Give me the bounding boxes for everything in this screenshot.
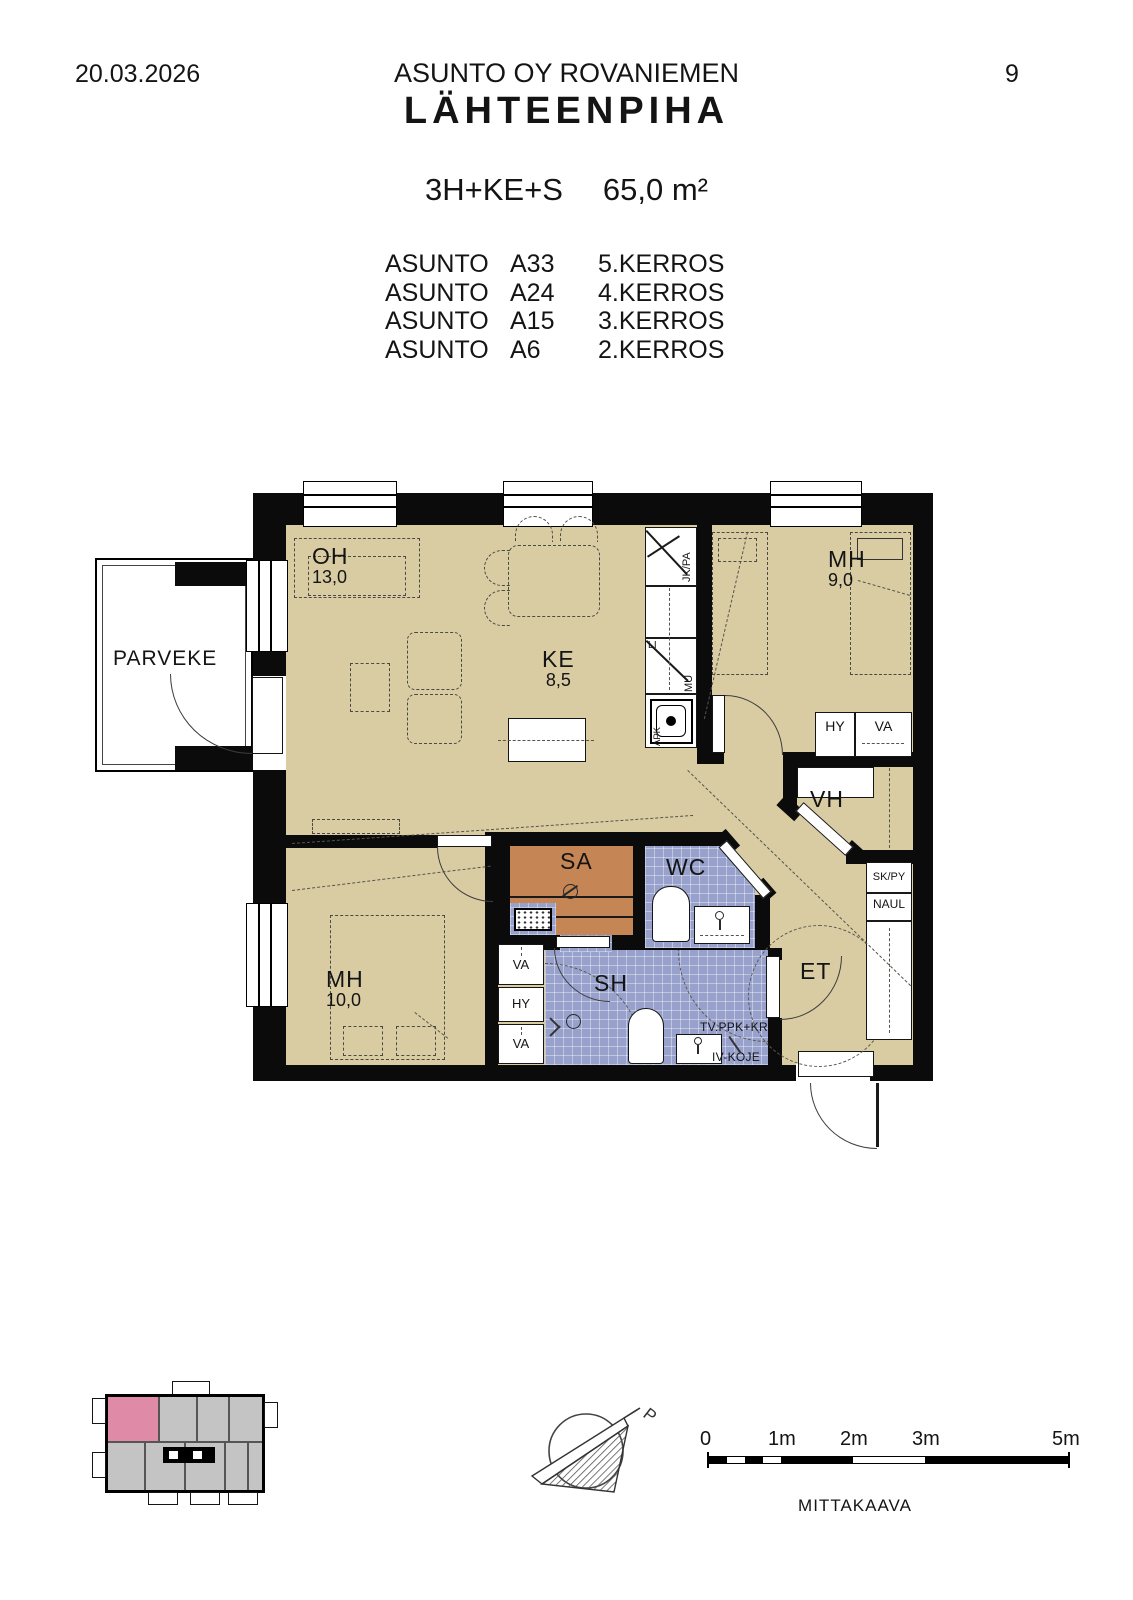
- room-area: 10,0: [326, 991, 364, 1009]
- toilet: [652, 886, 690, 942]
- keyplan-highlighted-unit: [108, 1397, 158, 1441]
- centerline: [889, 928, 890, 1033]
- door-leaf: [712, 695, 725, 753]
- unit-id: A15: [510, 307, 598, 336]
- unit-floor: 3.KERROS: [598, 307, 724, 335]
- keyplan-tab: [92, 1398, 106, 1424]
- armchair-outline: [407, 694, 462, 744]
- sauna-heater: [514, 908, 552, 931]
- room-area: 9,0: [828, 571, 866, 589]
- closet-label: HY: [816, 718, 854, 734]
- window: [303, 481, 397, 527]
- window-frame-line: [258, 904, 260, 1006]
- centerline: [700, 935, 744, 936]
- floorplan-page: 20.03.2026 ASUNTO OY ROVANIEMEN LÄHTEENP…: [0, 0, 1133, 1600]
- wall-segment: [498, 832, 510, 950]
- unit-floor: 4.KERROS: [598, 279, 724, 307]
- room-label-et: ET: [800, 960, 831, 983]
- floor-drain-icon: [563, 884, 578, 899]
- fixture-label-vent: IV-KOJE: [712, 1050, 760, 1064]
- wc-vanity: [694, 906, 750, 944]
- faucet-icon: [715, 911, 724, 920]
- centerline: [521, 1027, 522, 1035]
- keyplan-divider: [224, 1443, 226, 1490]
- window: [770, 481, 862, 527]
- floor-drain-icon: [566, 1014, 581, 1029]
- balcony-door-leaf: [252, 677, 283, 754]
- room-area: 13,0: [312, 568, 349, 586]
- wall-segment: [495, 832, 725, 846]
- unit-label: ASUNTO: [385, 336, 510, 365]
- scale-tick-3m: 3m: [912, 1428, 940, 1451]
- unit-list: ASUNTOA335.KERROS ASUNTOA244.KERROS ASUN…: [385, 250, 724, 364]
- keyplan-tab: [148, 1492, 178, 1505]
- wall-segment: [633, 846, 645, 950]
- unit-row: ASUNTOA153.KERROS: [385, 307, 724, 336]
- scale-bar-segment: [745, 1457, 763, 1463]
- window-frame-line: [504, 506, 592, 508]
- scale-bar-segment: [925, 1457, 1069, 1463]
- centerline: [498, 740, 594, 741]
- centerline: [862, 743, 904, 744]
- closet-label: HY: [499, 996, 543, 1011]
- door-leaf: [437, 835, 492, 847]
- et-cabinet: SK/PY NAUL: [866, 862, 912, 1040]
- scale-tick-0: 0: [700, 1428, 711, 1451]
- keyplan-building: [105, 1394, 265, 1493]
- drain-line: [562, 885, 578, 897]
- cabinet-divider: [645, 693, 697, 695]
- room-label-parveke: PARVEKE: [113, 648, 217, 669]
- closet-hy: HY: [815, 712, 855, 757]
- apartment-type: 3H+KE+S: [425, 172, 563, 207]
- keyplan-divider: [247, 1443, 249, 1490]
- door-swing-arc: [810, 1083, 877, 1149]
- scale-bar-segment: [781, 1457, 853, 1463]
- room-label-sa: SA: [560, 850, 593, 873]
- window-frame-line: [304, 506, 396, 508]
- window-frame-line: [304, 494, 396, 496]
- unit-floor: 2.KERROS: [598, 336, 724, 364]
- project-name: LÄHTEENPIHA: [0, 90, 1133, 133]
- keyplan-core-detail: [193, 1451, 202, 1459]
- closet-label: VA: [499, 1036, 543, 1051]
- room-label-oh: OH 13,0: [312, 545, 349, 586]
- closet-label: VA: [499, 957, 543, 972]
- faucet-icon: [697, 1045, 699, 1054]
- centerline: [669, 588, 670, 690]
- cabinet-divider: [645, 637, 697, 639]
- compass-tip-line: [624, 1408, 640, 1418]
- faucet-icon: [694, 1037, 702, 1045]
- centerline: [889, 768, 890, 848]
- pillow-outline: [718, 538, 757, 562]
- room-label-mh1: MH 9,0: [828, 548, 866, 589]
- wall-segment: [697, 525, 712, 762]
- scale-caption: MITTAKAAVA: [760, 1496, 950, 1516]
- window-frame-line: [270, 561, 272, 651]
- window-frame-line: [504, 494, 592, 496]
- fixture-label-micro: MU: [683, 675, 695, 692]
- room-label-ke: KE 8,5: [542, 648, 575, 689]
- keyplan-divider: [158, 1397, 160, 1441]
- closet-va: VA: [855, 712, 912, 757]
- unit-floor: 5.KERROS: [598, 250, 724, 278]
- keyplan-divider: [196, 1397, 198, 1441]
- room-name: MH: [326, 968, 364, 991]
- toilet: [628, 1008, 664, 1064]
- scale-bar-end-tick: [1068, 1452, 1070, 1468]
- room-label-wc: WC: [666, 856, 706, 879]
- pillow-outline: [343, 1026, 383, 1056]
- cabinet-divider: [867, 920, 911, 922]
- window-frame-line: [270, 904, 272, 1006]
- fixture-label-skpy: SK/PY: [867, 871, 911, 883]
- coffee-table-outline: [350, 663, 390, 712]
- room-label-sh: SH: [594, 972, 628, 995]
- scale-bar-segment: [709, 1457, 727, 1463]
- room-name: KE: [542, 648, 575, 671]
- scale-bar-end-tick: [707, 1452, 709, 1468]
- window-frame-line: [771, 494, 861, 496]
- apartment-type-line: 3H+KE+S65,0 m²: [0, 172, 1133, 208]
- keyplan-tab: [264, 1402, 278, 1428]
- closet-label: VA: [856, 718, 911, 734]
- unit-label: ASUNTO: [385, 250, 510, 279]
- fixture-label-fridge: JK/PA: [681, 552, 693, 582]
- closet-hy: HY: [498, 987, 544, 1022]
- room-label-mh2: MH 10,0: [326, 968, 364, 1009]
- fixture-label-naul: NAUL: [867, 897, 911, 911]
- scale-bar: [708, 1456, 1070, 1464]
- keyplan-divider: [228, 1397, 230, 1441]
- door-leaf: [556, 936, 610, 948]
- wall-segment: [175, 562, 255, 586]
- unit-row: ASUNTOA335.KERROS: [385, 250, 724, 279]
- unit-row: ASUNTOA62.KERROS: [385, 336, 724, 365]
- closet-va: VA: [498, 1024, 544, 1064]
- unit-id: A24: [510, 279, 598, 308]
- unit-row: ASUNTOA244.KERROS: [385, 279, 724, 308]
- keyplan-core: [163, 1447, 215, 1463]
- north-arrow-compass: P: [520, 1372, 670, 1497]
- compass-needle-hatched: [542, 1426, 628, 1492]
- cabinet-divider: [867, 892, 911, 894]
- cabinet-divider: [645, 585, 697, 587]
- scale-tick-2m: 2m: [840, 1428, 868, 1451]
- page-number: 9: [1005, 60, 1019, 89]
- keyplan-core-detail: [169, 1451, 178, 1459]
- window-frame-line: [258, 561, 260, 651]
- room-name: OH: [312, 545, 349, 568]
- room-label-vh: VH: [810, 788, 844, 811]
- unit-id: A6: [510, 336, 598, 365]
- armchair-outline: [407, 632, 462, 690]
- fixture-label-stove: LI: [648, 640, 657, 651]
- closet-va: VA: [498, 944, 544, 985]
- keyplan-tab: [228, 1492, 258, 1505]
- keyplan-tab: [92, 1452, 106, 1478]
- room-name: MH: [828, 548, 866, 571]
- centerline: [521, 947, 522, 956]
- sideboard-outline: [312, 819, 400, 834]
- unit-id: A33: [510, 250, 598, 279]
- scale-tick-5m: 5m: [1052, 1428, 1080, 1451]
- fixture-label-dishwasher: APK: [652, 727, 663, 746]
- window: [246, 560, 288, 652]
- scale-tick-1m: 1m: [768, 1428, 796, 1451]
- room-area: 8,5: [542, 671, 575, 689]
- window: [246, 903, 288, 1007]
- dining-table-outline: [508, 545, 600, 617]
- compass-north-label: P: [640, 1404, 661, 1426]
- keyplan-divider: [144, 1443, 146, 1490]
- apartment-area: 65,0 m²: [603, 172, 708, 207]
- sink-drain: [666, 716, 676, 726]
- company-name: ASUNTO OY ROVANIEMEN: [0, 58, 1133, 89]
- unit-label: ASUNTO: [385, 279, 510, 308]
- window-frame-line: [771, 506, 861, 508]
- pillow-outline: [396, 1026, 436, 1056]
- keyplan-tab: [190, 1492, 220, 1505]
- unit-label: ASUNTO: [385, 307, 510, 336]
- faucet-icon: [719, 920, 721, 930]
